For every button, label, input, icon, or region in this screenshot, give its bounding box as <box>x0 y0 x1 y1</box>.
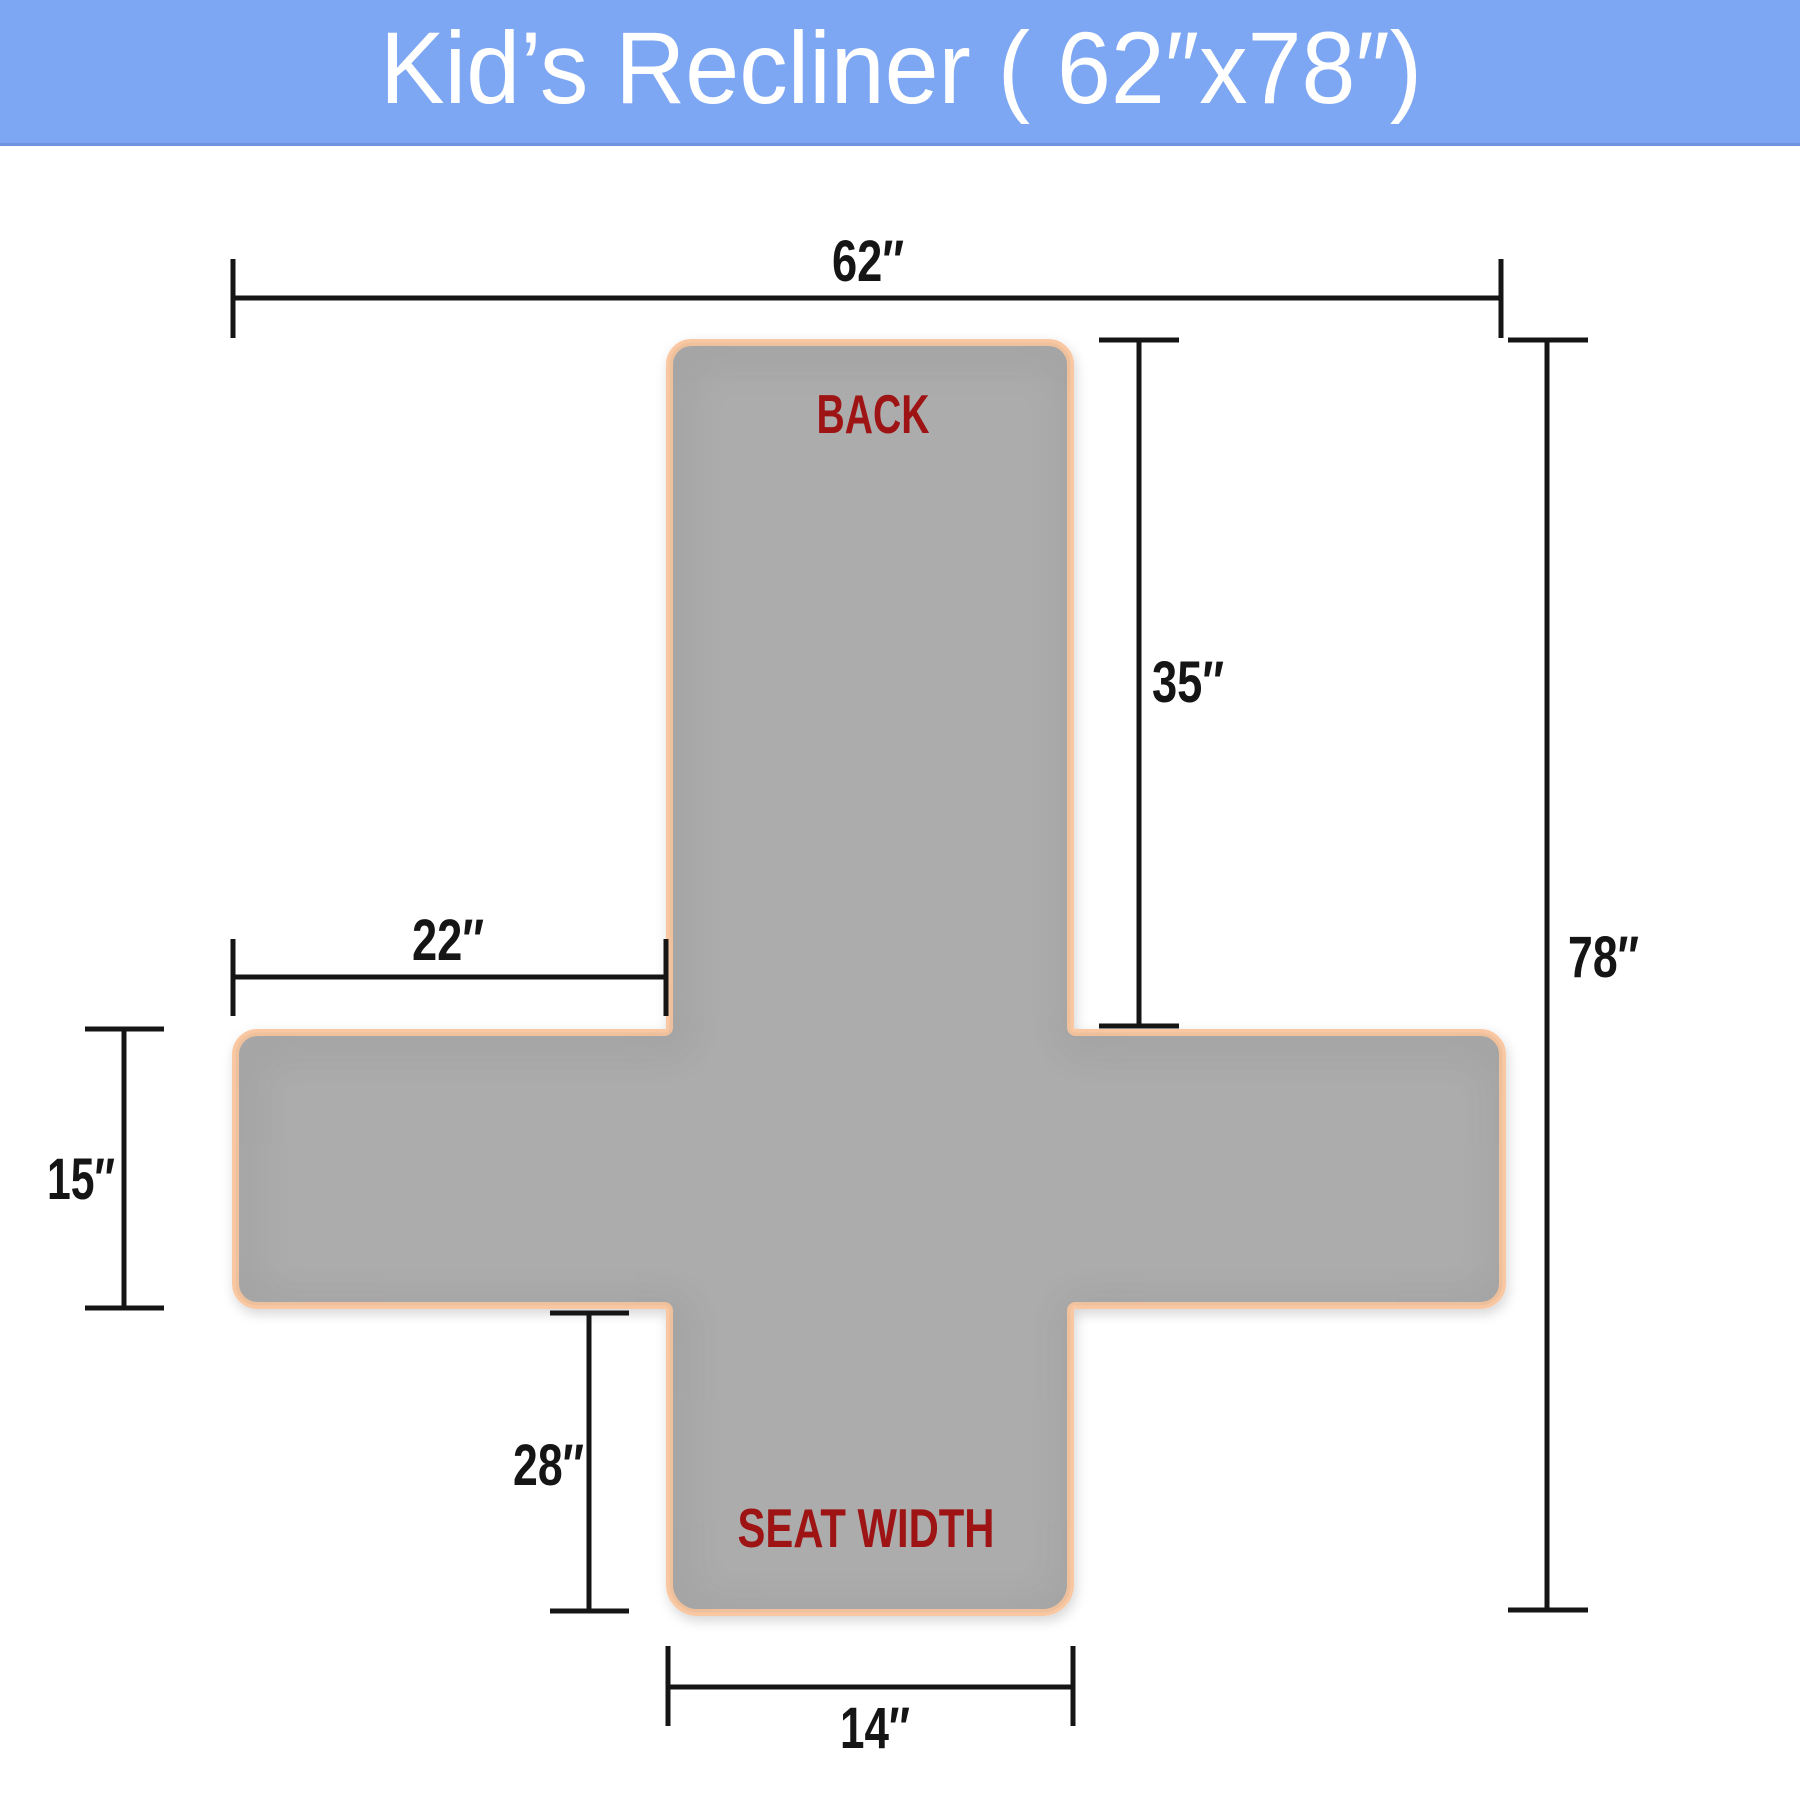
svg-text:14″: 14″ <box>840 1696 910 1761</box>
svg-text:15″: 15″ <box>47 1147 115 1212</box>
svg-text:28″: 28″ <box>513 1433 584 1498</box>
svg-text:78″: 78″ <box>1568 925 1639 990</box>
svg-text:35″: 35″ <box>1152 650 1224 715</box>
svg-text:22″: 22″ <box>412 908 484 973</box>
svg-text:62″: 62″ <box>832 229 904 294</box>
svg-text:Kid’s Recliner ( 62″x78″): Kid’s Recliner ( 62″x78″) <box>380 11 1422 125</box>
svg-text:BACK: BACK <box>817 383 930 445</box>
svg-text:SEAT WIDTH: SEAT WIDTH <box>738 1497 995 1559</box>
